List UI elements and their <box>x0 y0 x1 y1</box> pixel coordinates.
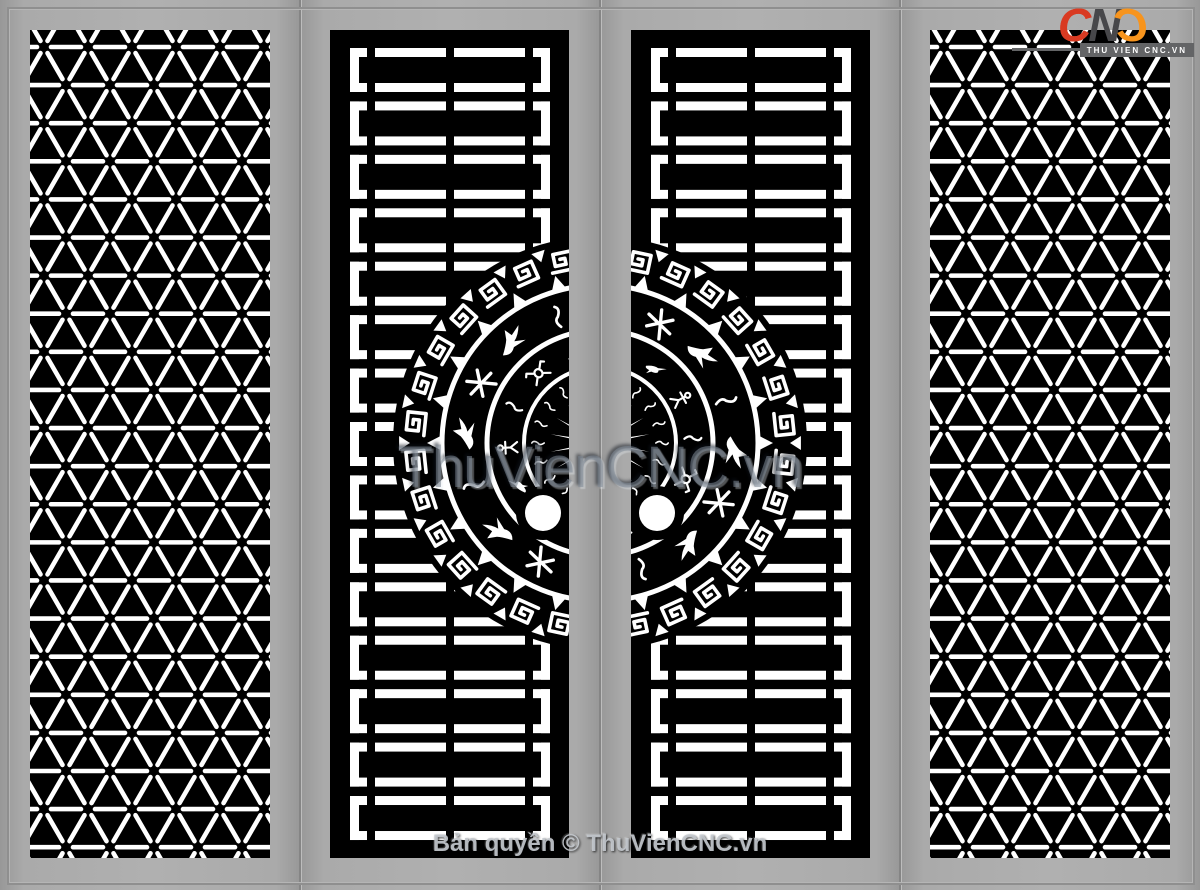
panel-ladder-right <box>631 30 870 858</box>
brand-logo: CNC THU VIEN CNC.VN <box>1046 2 1196 62</box>
panel-ladder-left <box>330 30 569 858</box>
copyright-text: Bản quyền © ThuVienCNC.vn <box>433 830 768 858</box>
logo-underline <box>1012 48 1084 51</box>
logo-tagline: THU VIEN CNC.VN <box>1080 43 1194 57</box>
gate-design: ThuVienCNC.vn Bản quyền © ThuVienCNC.vn … <box>0 0 1200 890</box>
logo-letters: CNC <box>1058 2 1149 48</box>
panel-lattice-right <box>930 30 1170 858</box>
panel-lattice-left <box>30 30 270 858</box>
logo-letter-c2: C <box>1118 2 1148 48</box>
